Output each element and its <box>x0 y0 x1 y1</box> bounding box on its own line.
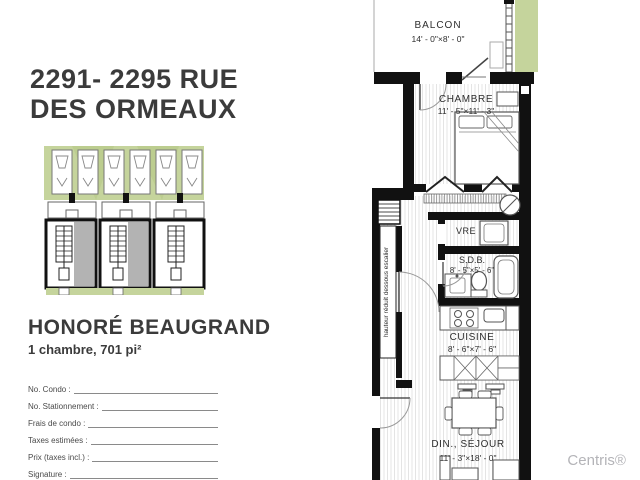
form-row-frais: Frais de condo : <box>28 411 218 428</box>
form-label: Taxes estimées : <box>28 436 88 445</box>
dresser <box>497 92 518 106</box>
model-name: HONORÉ BEAUGRAND <box>28 316 271 340</box>
form-row-stationnement: No. Stationnement : <box>28 394 218 411</box>
dining-table <box>452 398 496 428</box>
bathroom-dims: 8' - 5"×5' - 6" <box>450 266 495 275</box>
kitchen-label: CUISINE <box>450 332 495 343</box>
title-line-1: 2291- 2295 RUE <box>30 64 238 94</box>
stairs-icon <box>378 200 400 224</box>
floorplan-sheet: 2291- 2295 RUE DES ORMEAUX <box>0 0 640 480</box>
title-line-2: DES ORMEAUX <box>30 94 238 124</box>
balcony-area: BALCON 14' - 0"×8' - 0" <box>374 0 538 80</box>
form-blank-line <box>92 451 218 462</box>
centris-watermark: Centris® <box>567 452 626 469</box>
form-row-signature: Signature : <box>28 462 218 479</box>
closet-rod <box>424 194 506 203</box>
site-front-strip <box>46 288 204 295</box>
bathroom-label: S.D.B. <box>459 255 485 265</box>
site-plan-thumbnail <box>42 146 208 295</box>
form-label: No. Condo : <box>28 385 71 394</box>
form-blank-line <box>102 400 218 411</box>
fridge-icon <box>506 306 519 330</box>
sink-icon <box>484 309 504 322</box>
form-blank-line <box>88 417 218 428</box>
form-blank-line <box>74 383 218 394</box>
roof-ladder-icon <box>506 0 512 80</box>
coffee-table <box>452 468 478 480</box>
form-row-condo: No. Condo : <box>28 377 218 394</box>
under-stair-niche: hauteur réduit dessous escalier <box>380 226 396 358</box>
ladder-anchor <box>504 0 514 4</box>
info-form: No. Condo : No. Stationnement : Frais de… <box>28 377 218 479</box>
bedroom-dims: 11' - 5"×11' - 3" <box>438 106 494 116</box>
form-blank-line <box>70 468 218 479</box>
living-dims: 11' - 3"×18' - 0" <box>439 453 496 463</box>
form-label: No. Stationnement : <box>28 402 99 411</box>
bed <box>455 112 519 184</box>
balcony-dims: 14' - 0"×8' - 0" <box>412 34 465 44</box>
form-label: Signature : <box>28 470 67 479</box>
kitchen-dims: 8' - 6"×7' - 6" <box>448 344 496 354</box>
window-marker <box>521 86 529 94</box>
site-decks <box>48 202 204 218</box>
stove-icon <box>450 308 478 328</box>
form-label: Prix (taxes incl.) : <box>28 453 89 462</box>
living-label: DIN., SÉJOUR <box>431 437 504 450</box>
unit-floor-plan: BALCON 14' - 0"×8' - 0" <box>366 0 542 480</box>
walkin-closet <box>480 221 508 245</box>
balcony-storage-box <box>490 42 503 68</box>
form-blank-line <box>91 434 218 445</box>
form-row-taxes: Taxes estimées : <box>28 428 218 445</box>
form-row-prix: Prix (taxes incl.) : <box>28 445 218 462</box>
bedroom-label: CHAMBRE <box>439 94 493 105</box>
balcony-green-strip <box>515 0 538 72</box>
closet-label: VRE <box>456 226 476 236</box>
stair-note: hauteur réduit dessous escalier <box>383 246 390 337</box>
unit-summary: 1 chambre, 701 pi² <box>28 342 141 357</box>
sofa <box>493 460 519 480</box>
form-label: Frais de condo : <box>28 419 85 428</box>
balcony-label: BALCON <box>414 20 461 31</box>
page-title: 2291- 2295 RUE DES ORMEAUX <box>30 64 238 124</box>
